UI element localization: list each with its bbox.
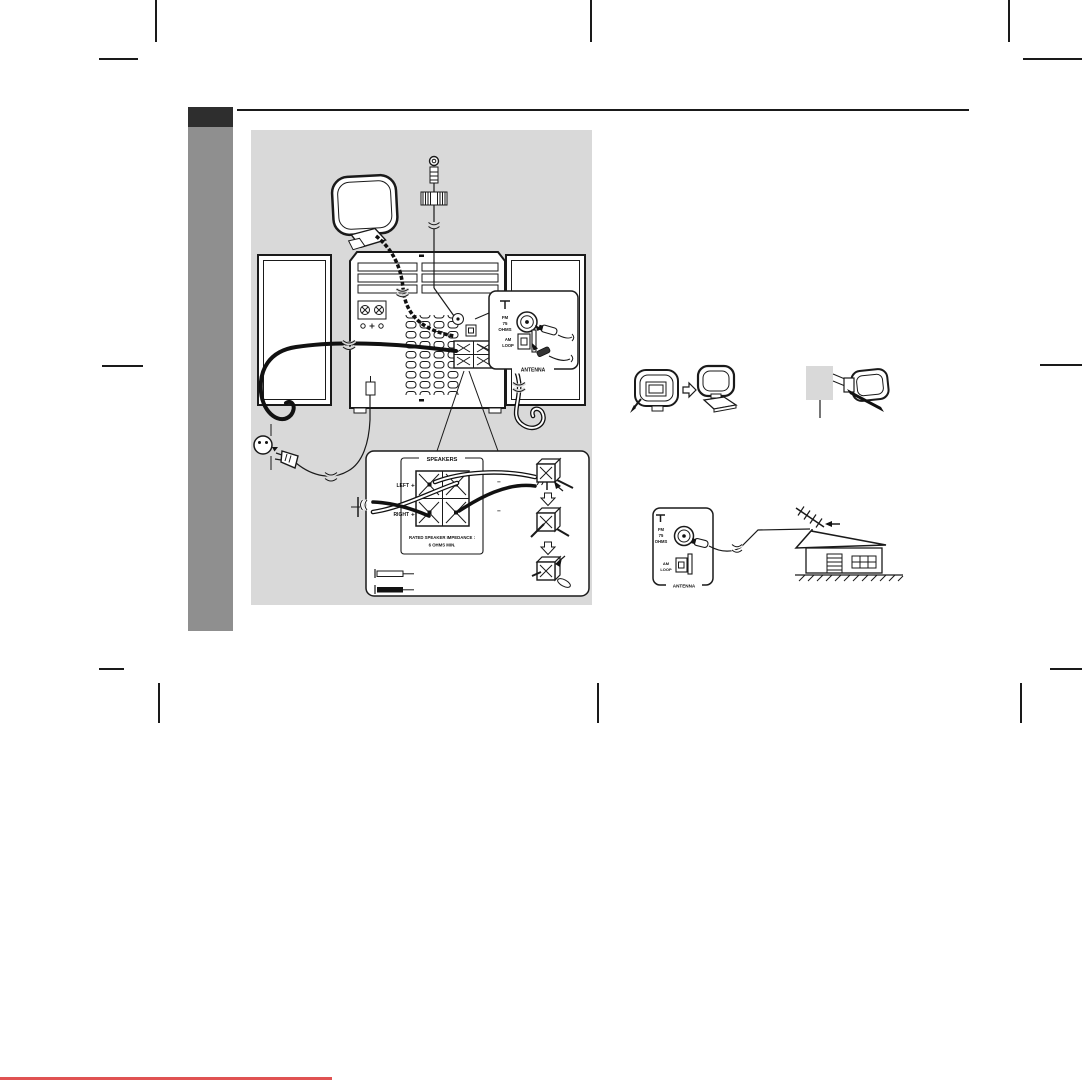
next-step-arrow-icon [683, 383, 696, 397]
footer-red-rule [0, 1077, 332, 1080]
aux-terminal-block [358, 301, 386, 329]
crop-mark [99, 668, 124, 670]
crop-mark [155, 0, 157, 42]
vent-grid [403, 315, 461, 395]
impedance-note-line1: RATED SPEAKER IMPEDANCE : [409, 535, 476, 540]
am-antenna-fold-step [630, 370, 678, 413]
crop-mark [158, 683, 160, 723]
am-loop-label: LOOP [502, 343, 514, 348]
minus-mark: − [497, 508, 501, 515]
speaker-terminals-on-panel [454, 341, 493, 368]
fm-outdoor-hookup: FM 75 OHMS AM LOOP ANTENNA [653, 507, 903, 590]
ground-line [795, 575, 903, 581]
crop-mark [99, 58, 138, 60]
system-connection-diagram: FM 75 OHMS AM LOOP [251, 130, 592, 605]
am-terminal-on-panel [466, 325, 476, 336]
fm-ohms-label: OHMS [655, 539, 668, 544]
plus-mark: + [411, 512, 415, 519]
left-speaker [258, 255, 331, 405]
crop-mark [1050, 668, 1082, 670]
crop-mark [590, 0, 592, 42]
minus-mark: − [497, 479, 501, 486]
antenna-cord-holder [421, 192, 447, 205]
crop-mark [1023, 58, 1082, 60]
antenna-terminal-inset: FM 75 OHMS AM LOOP [489, 291, 578, 374]
am-loop-label: LOOP [660, 567, 672, 572]
fm-ohms-value: 75 [659, 533, 664, 538]
manual-page: FM 75 OHMS AM LOOP [0, 0, 1082, 1084]
speakers-terminal-inset: SPEAKERS LEFT + RIGHT + − − [351, 451, 589, 596]
am-antenna-wall-mount [806, 366, 889, 418]
fm-coax-jack [517, 312, 537, 332]
pointer-arrow [825, 521, 832, 527]
section-sidebar [188, 127, 233, 631]
am-antenna-assembled [698, 366, 736, 412]
speakers-title: SPEAKERS [427, 457, 458, 463]
section-tab [188, 107, 233, 127]
crop-mark [1008, 0, 1010, 42]
crop-mark [597, 683, 599, 723]
left-channel-label: LEFT [397, 483, 410, 489]
header-rule [237, 109, 969, 111]
wall-surface [806, 366, 833, 400]
antenna-setup-diagrams: FM 75 OHMS AM LOOP ANTENNA [600, 340, 1082, 620]
fm-coax-jack [675, 527, 694, 546]
antenna-panel-label: ANTENNA [673, 584, 696, 589]
fm-ohms-label: OHMS [498, 327, 511, 332]
crop-mark [102, 365, 143, 367]
am-label: AM [505, 337, 512, 342]
antenna-terminal-panel: FM 75 OHMS AM LOOP ANTENNA [653, 508, 713, 590]
antenna-panel-label: ANTENNA [521, 368, 546, 374]
house [796, 531, 886, 573]
fm-jack-on-panel [453, 314, 464, 325]
impedance-note-line2: 6 OHMS MIN. [429, 543, 456, 548]
fm-label: FM [502, 315, 509, 320]
main-unit-rear-panel [350, 252, 505, 413]
right-channel-label: RIGHT [393, 512, 409, 518]
fm-label: FM [658, 527, 665, 532]
fm-ohms-value: 75 [503, 321, 508, 326]
crop-mark [1020, 683, 1022, 723]
am-label: AM [663, 561, 670, 566]
plus-mark: + [411, 483, 415, 490]
